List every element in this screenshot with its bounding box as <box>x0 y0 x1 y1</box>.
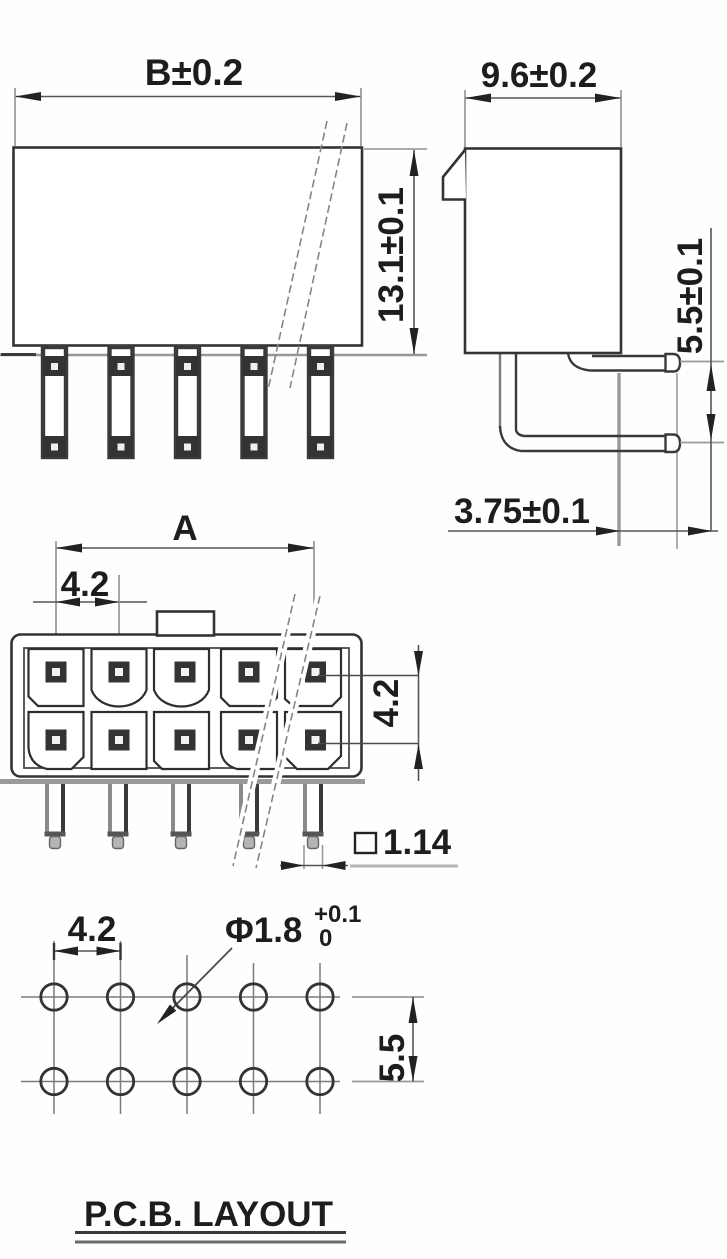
svg-text:Φ1.8: Φ1.8 <box>225 911 302 950</box>
svg-text:4.2: 4.2 <box>61 565 110 604</box>
svg-text:5.5±0.1: 5.5±0.1 <box>671 238 710 355</box>
svg-text:+0.1: +0.1 <box>314 901 361 928</box>
svg-text:4.2: 4.2 <box>68 910 117 949</box>
svg-text:P.C.B. LAYOUT: P.C.B. LAYOUT <box>84 1195 333 1234</box>
svg-text:5.5: 5.5 <box>373 1034 412 1083</box>
svg-text:4.2: 4.2 <box>367 679 406 728</box>
svg-text:B±0.2: B±0.2 <box>145 52 243 93</box>
svg-text:A: A <box>172 509 197 548</box>
svg-text:0: 0 <box>319 925 332 952</box>
svg-text:1.14: 1.14 <box>383 823 452 862</box>
svg-text:9.6±0.2: 9.6±0.2 <box>481 56 598 95</box>
svg-text:13.1±0.1: 13.1±0.1 <box>372 187 411 323</box>
svg-text:3.75±0.1: 3.75±0.1 <box>454 492 590 531</box>
